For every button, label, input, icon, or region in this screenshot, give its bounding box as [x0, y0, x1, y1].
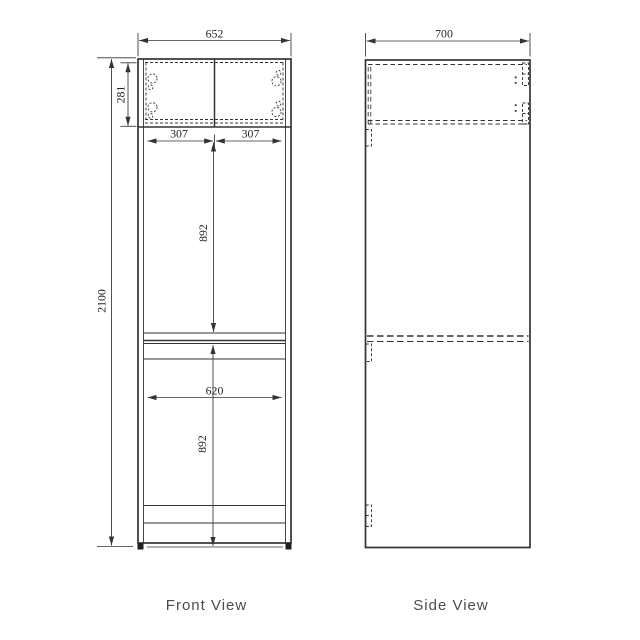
- dimension-text: 2100: [95, 289, 109, 313]
- front-foot-left: [138, 543, 144, 550]
- front-foot-right: [286, 543, 292, 550]
- screw-dot: [515, 104, 517, 106]
- screw-dot: [515, 77, 517, 79]
- dimension-text: 892: [196, 224, 210, 242]
- dimension-text: 307: [170, 127, 188, 141]
- front-view-label: Front View: [166, 597, 247, 614]
- dimension-text: 620: [206, 384, 224, 398]
- screw-dot: [515, 82, 517, 84]
- dimension-text: 700: [435, 27, 453, 41]
- screw-dot: [515, 110, 517, 112]
- dimension-text: 307: [242, 127, 260, 141]
- drawing-page: 652 2100 281 30: [0, 0, 640, 640]
- canvas-background: [0, 0, 640, 640]
- dimension-text: 652: [206, 27, 224, 41]
- dimension-text: 281: [114, 86, 128, 104]
- dimension-text: 892: [195, 435, 209, 453]
- side-view-label: Side View: [413, 597, 488, 614]
- technical-drawing: 652 2100 281 30: [0, 0, 640, 640]
